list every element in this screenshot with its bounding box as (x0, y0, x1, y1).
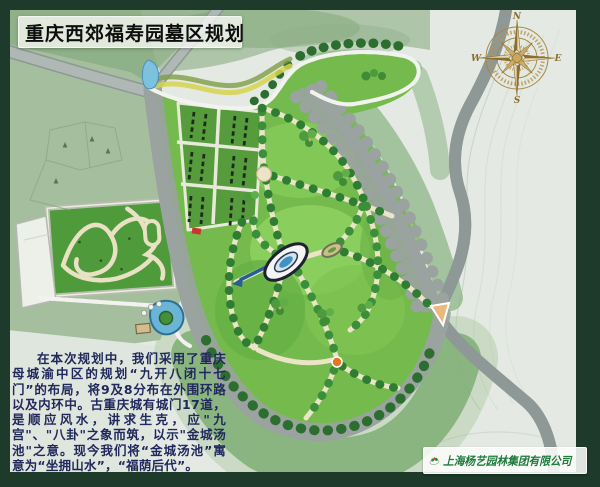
pavilion (136, 323, 151, 333)
poster-frame: 重庆西郊福寿园墓区规划 (0, 0, 600, 487)
plot-entrance-marker (192, 227, 202, 234)
compass-letter-n: N (512, 12, 522, 22)
burial-plots (177, 103, 262, 235)
company-box: 上海杨艺园林集团有限公司 (423, 447, 587, 474)
company-logo-icon (429, 451, 440, 471)
page-title: 重庆西郊福寿园墓区规划 (19, 19, 251, 46)
compass-letter-w: W (471, 54, 482, 64)
title-box: 重庆西郊福寿园墓区规划 (18, 16, 242, 48)
compass-letter-e: E (554, 54, 562, 64)
planning-description: 在本次规划中，我们采用了重庆母城渝中区的规划“九开八闭十七门”的布局，将9及8分… (12, 351, 226, 473)
round-plaza-node (257, 167, 272, 182)
company-name: 上海杨艺园林集团有限公司 (443, 453, 571, 469)
compass-letter-s: S (514, 96, 521, 104)
compass-rose: N S W E (471, 12, 563, 104)
orange-node (332, 357, 342, 367)
